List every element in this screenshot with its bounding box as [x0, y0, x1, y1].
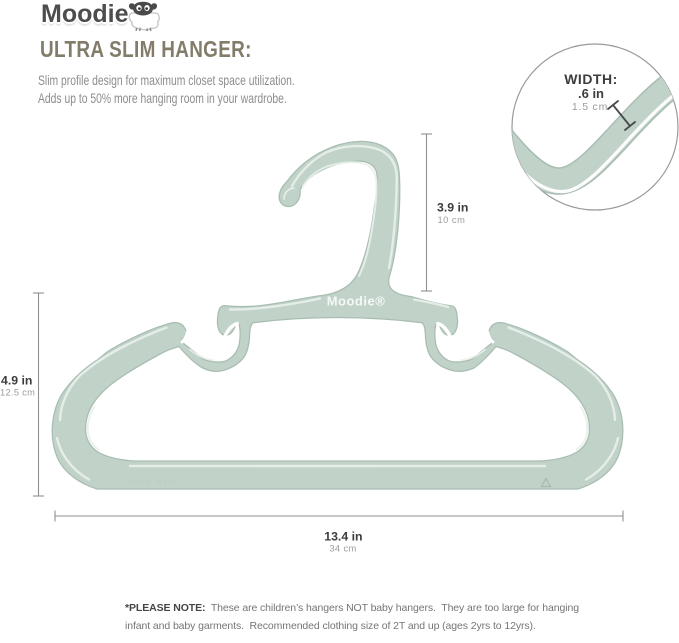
svg-text:34 cm: 34 cm [329, 544, 356, 554]
svg-text:1.5 cm: 1.5 cm [572, 101, 608, 113]
svg-text:13.4 in: 13.4 in [324, 530, 362, 544]
svg-text:Moodie®: Moodie® [327, 294, 386, 309]
svg-text:10 cm: 10 cm [438, 215, 466, 225]
svg-text:3.9 in: 3.9 in [437, 201, 468, 215]
svg-text:WIDTH:: WIDTH: [564, 71, 618, 87]
svg-text:4.9 in: 4.9 in [1, 374, 32, 388]
svg-text:12.5 cm: 12.5 cm [0, 388, 35, 398]
svg-text:GQW 8101: GQW 8101 [130, 477, 180, 486]
svg-text:.6 in: .6 in [578, 86, 604, 101]
